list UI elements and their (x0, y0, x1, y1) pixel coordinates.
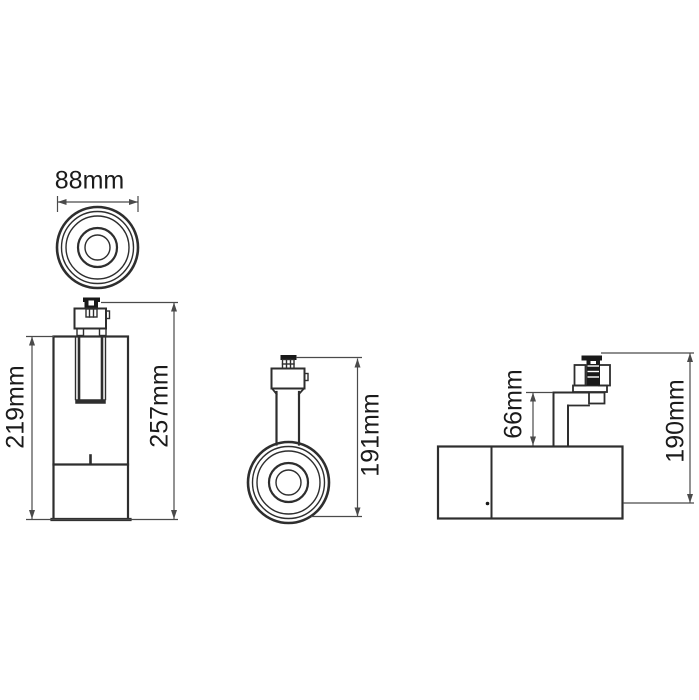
lens-circles (57, 207, 138, 288)
technical-drawing-page: 88mm 219mm 257mm 191mm 66mm 190mm (0, 0, 699, 700)
dimension-label-88mm: 88mm (55, 169, 124, 194)
top-view-drawing (57, 196, 138, 288)
dimension-66mm-lines (526, 393, 553, 446)
dimension-label-219mm: 219mm (4, 365, 29, 448)
track-adapter-front (75, 298, 110, 336)
track-adapter-side (272, 355, 309, 389)
dimension-label-66mm: 66mm (502, 369, 527, 438)
lens-circles-side (248, 442, 329, 523)
dimension-label-257mm: 257mm (148, 364, 173, 447)
mounting-arm (554, 393, 605, 447)
side-view-drawing (248, 355, 362, 523)
dimension-88mm-lines (58, 196, 139, 212)
mounted-view-drawing (438, 353, 694, 519)
dimension-label-191mm: 191mm (359, 393, 384, 476)
fixture-body-front (52, 337, 130, 520)
fixture-body-horizontal (438, 447, 623, 519)
track-adapter-horizontal (573, 356, 610, 393)
technical-drawing-canvas (0, 0, 699, 700)
stem-arm-side (273, 389, 304, 445)
dimension-label-190mm: 190mm (664, 379, 689, 462)
